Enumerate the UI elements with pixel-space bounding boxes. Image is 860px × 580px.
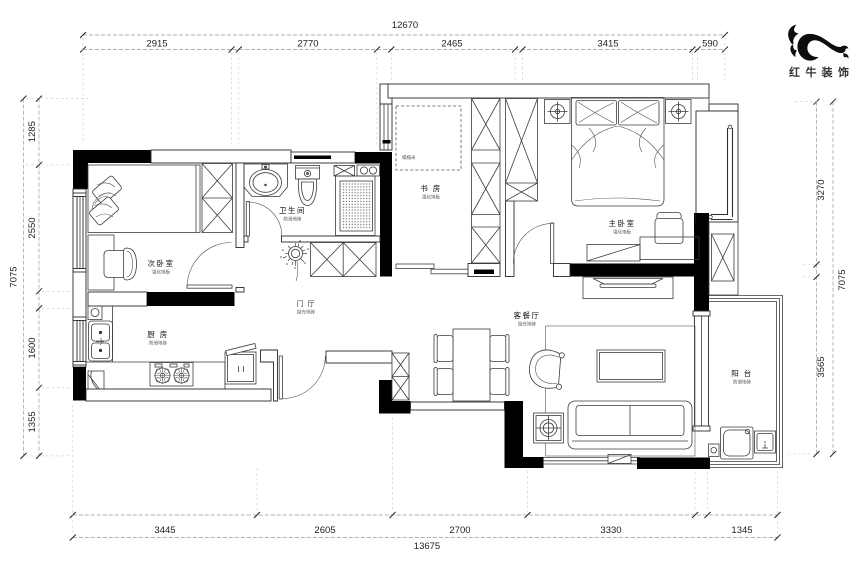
svg-text:厨 房: 厨 房 xyxy=(147,329,169,339)
svg-text:阳 台: 阳 台 xyxy=(731,368,753,378)
svg-text:次卧室: 次卧室 xyxy=(148,258,175,268)
svg-text:1345: 1345 xyxy=(731,525,752,536)
svg-text:3330: 3330 xyxy=(600,525,621,536)
svg-text:3565: 3565 xyxy=(816,356,827,377)
svg-text:7075: 7075 xyxy=(837,269,848,290)
svg-text:防滑地砖: 防滑地砖 xyxy=(149,340,167,347)
svg-text:客餐厅: 客餐厅 xyxy=(514,310,541,320)
svg-text:12670: 12670 xyxy=(392,20,418,31)
svg-text:防滑地砖: 防滑地砖 xyxy=(284,216,302,223)
svg-text:3415: 3415 xyxy=(597,39,618,50)
svg-text:榻榻米: 榻榻米 xyxy=(402,154,416,161)
svg-text:强化地板: 强化地板 xyxy=(613,229,631,236)
svg-text:590: 590 xyxy=(702,39,718,50)
svg-text:2700: 2700 xyxy=(449,525,470,536)
svg-text:3445: 3445 xyxy=(154,525,175,536)
svg-text:7075: 7075 xyxy=(9,266,20,287)
svg-text:防滑地砖: 防滑地砖 xyxy=(733,379,751,386)
svg-text:1355: 1355 xyxy=(27,411,38,432)
svg-text:1285: 1285 xyxy=(27,121,38,142)
svg-text:强化地板: 强化地板 xyxy=(422,194,440,201)
svg-text:红: 红 xyxy=(789,65,800,79)
svg-text:2605: 2605 xyxy=(314,525,335,536)
svg-text:卫生间: 卫生间 xyxy=(279,205,306,215)
svg-text:拋光地砖: 拋光地砖 xyxy=(297,309,315,316)
svg-text:2550: 2550 xyxy=(27,217,38,238)
svg-text:2465: 2465 xyxy=(441,39,462,50)
svg-text:饰: 饰 xyxy=(838,65,849,79)
svg-text:强化地板: 强化地板 xyxy=(152,269,170,276)
svg-text:13675: 13675 xyxy=(414,541,440,552)
svg-text:门 厅: 门 厅 xyxy=(297,299,316,308)
svg-text:主卧室: 主卧室 xyxy=(609,218,636,228)
svg-text:1600: 1600 xyxy=(27,337,38,358)
svg-text:3270: 3270 xyxy=(816,179,827,200)
svg-text:书 房: 书 房 xyxy=(420,183,442,193)
svg-text:拋光地砖: 拋光地砖 xyxy=(518,321,536,328)
svg-text:2770: 2770 xyxy=(297,39,318,50)
svg-text:牛: 牛 xyxy=(806,65,817,79)
svg-text:2915: 2915 xyxy=(146,39,167,50)
svg-text:装: 装 xyxy=(821,65,833,79)
